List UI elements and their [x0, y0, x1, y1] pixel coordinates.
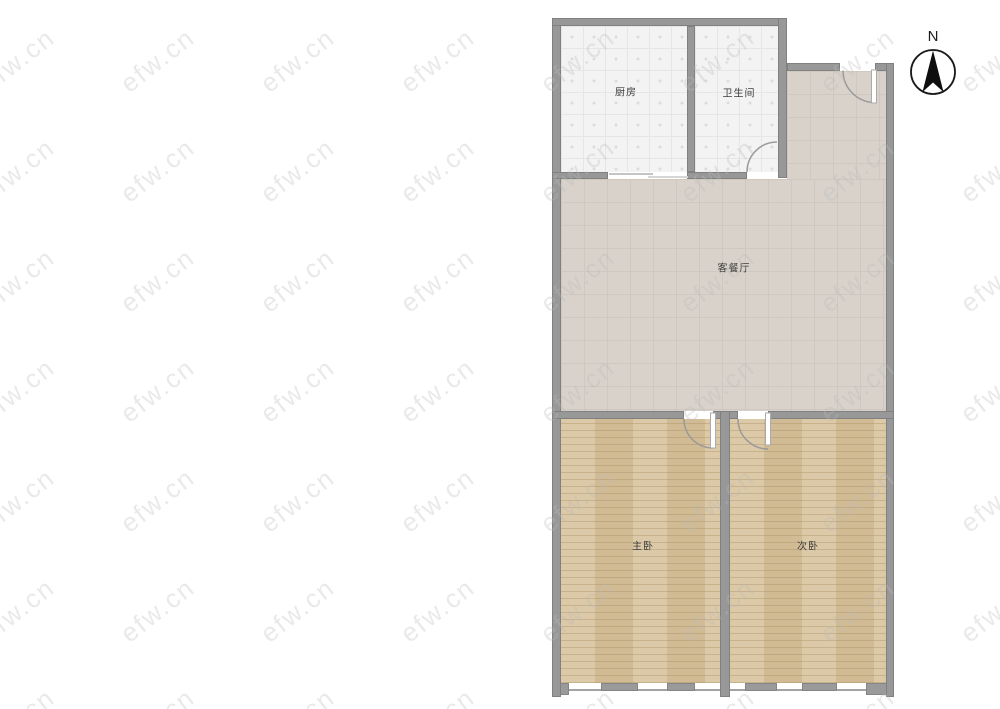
north-compass-icon [909, 48, 957, 96]
floorplan-page: { "title": "户型图", "watermark": { "text":… [0, 0, 1000, 709]
second-door-arc [738, 419, 768, 449]
living-label: 客餐厅 [718, 260, 751, 275]
master-door-arc [684, 419, 713, 448]
bathroom-door-arc [747, 142, 777, 172]
master-bedroom-label: 主卧 [632, 538, 654, 553]
second-door-leaf [766, 413, 771, 445]
door-swing-layer [0, 0, 1000, 709]
bathroom-label: 卫生间 [723, 85, 756, 100]
floorplan: 厨房 卫生间 客餐厅 主卧 次卧 N [0, 0, 1000, 709]
second-bedroom-label: 次卧 [797, 538, 819, 553]
master-door-leaf [711, 413, 716, 448]
kitchen-label: 厨房 [615, 84, 637, 99]
entry-door-leaf [872, 70, 877, 103]
north-label: N [903, 28, 963, 45]
entry-door-arc [843, 71, 875, 103]
